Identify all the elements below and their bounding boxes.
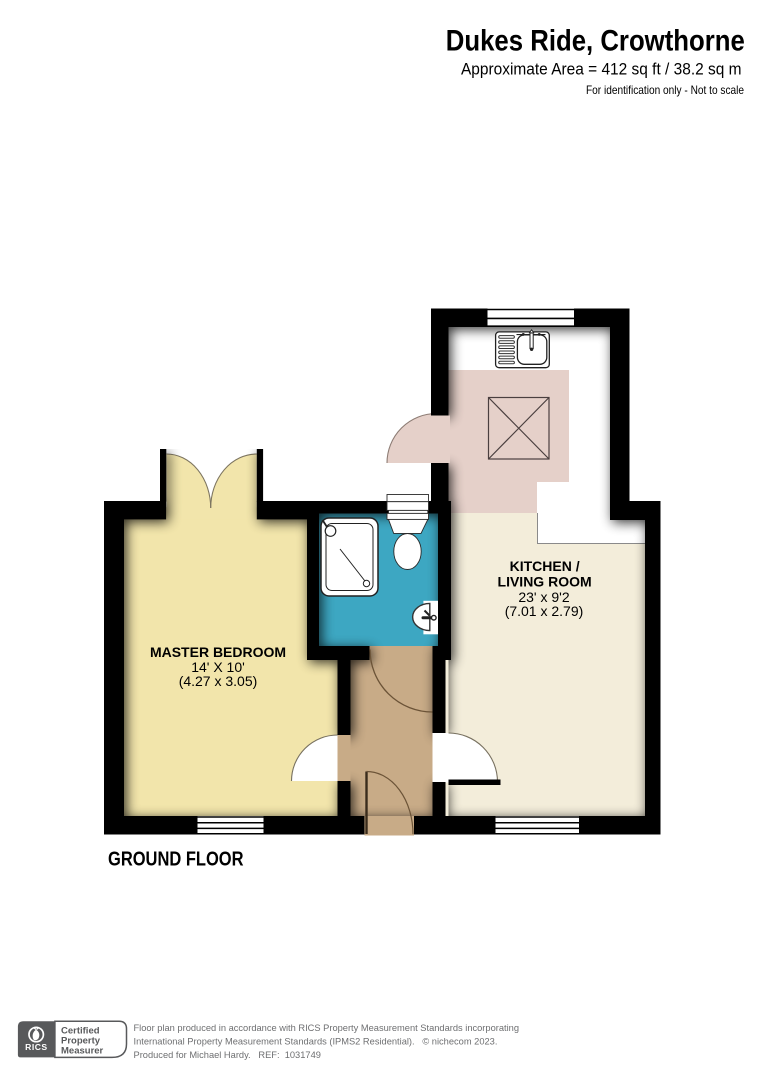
svg-text:(7.01 x 2.79): (7.01 x 2.79) xyxy=(505,603,584,619)
svg-text:(4.27 x 3.05): (4.27 x 3.05) xyxy=(179,673,258,689)
svg-text:For identification only - Not: For identification only - Not to scale xyxy=(586,83,744,97)
svg-text:RICS: RICS xyxy=(25,1042,48,1052)
svg-text:KITCHEN /: KITCHEN / xyxy=(510,558,580,574)
svg-text:Produced for Michael Hardy.: Produced for Michael Hardy. REF: 1031749 xyxy=(134,1050,321,1060)
svg-text:GROUND FLOOR: GROUND FLOOR xyxy=(108,849,244,871)
svg-text:International Property Measure: International Property Measurement Stand… xyxy=(134,1037,498,1047)
svg-text:Measurer: Measurer xyxy=(61,1046,104,1057)
svg-text:Approximate Area = 412 sq ft /: Approximate Area = 412 sq ft / 38.2 sq m xyxy=(461,60,742,78)
svg-text:Dukes Ride, Crowthorne: Dukes Ride, Crowthorne xyxy=(446,24,745,57)
svg-text:MASTER BEDROOM: MASTER BEDROOM xyxy=(150,644,286,660)
svg-text:Floor plan produced in accorda: Floor plan produced in accordance with R… xyxy=(134,1023,520,1033)
svg-text:LIVING ROOM: LIVING ROOM xyxy=(498,574,592,590)
